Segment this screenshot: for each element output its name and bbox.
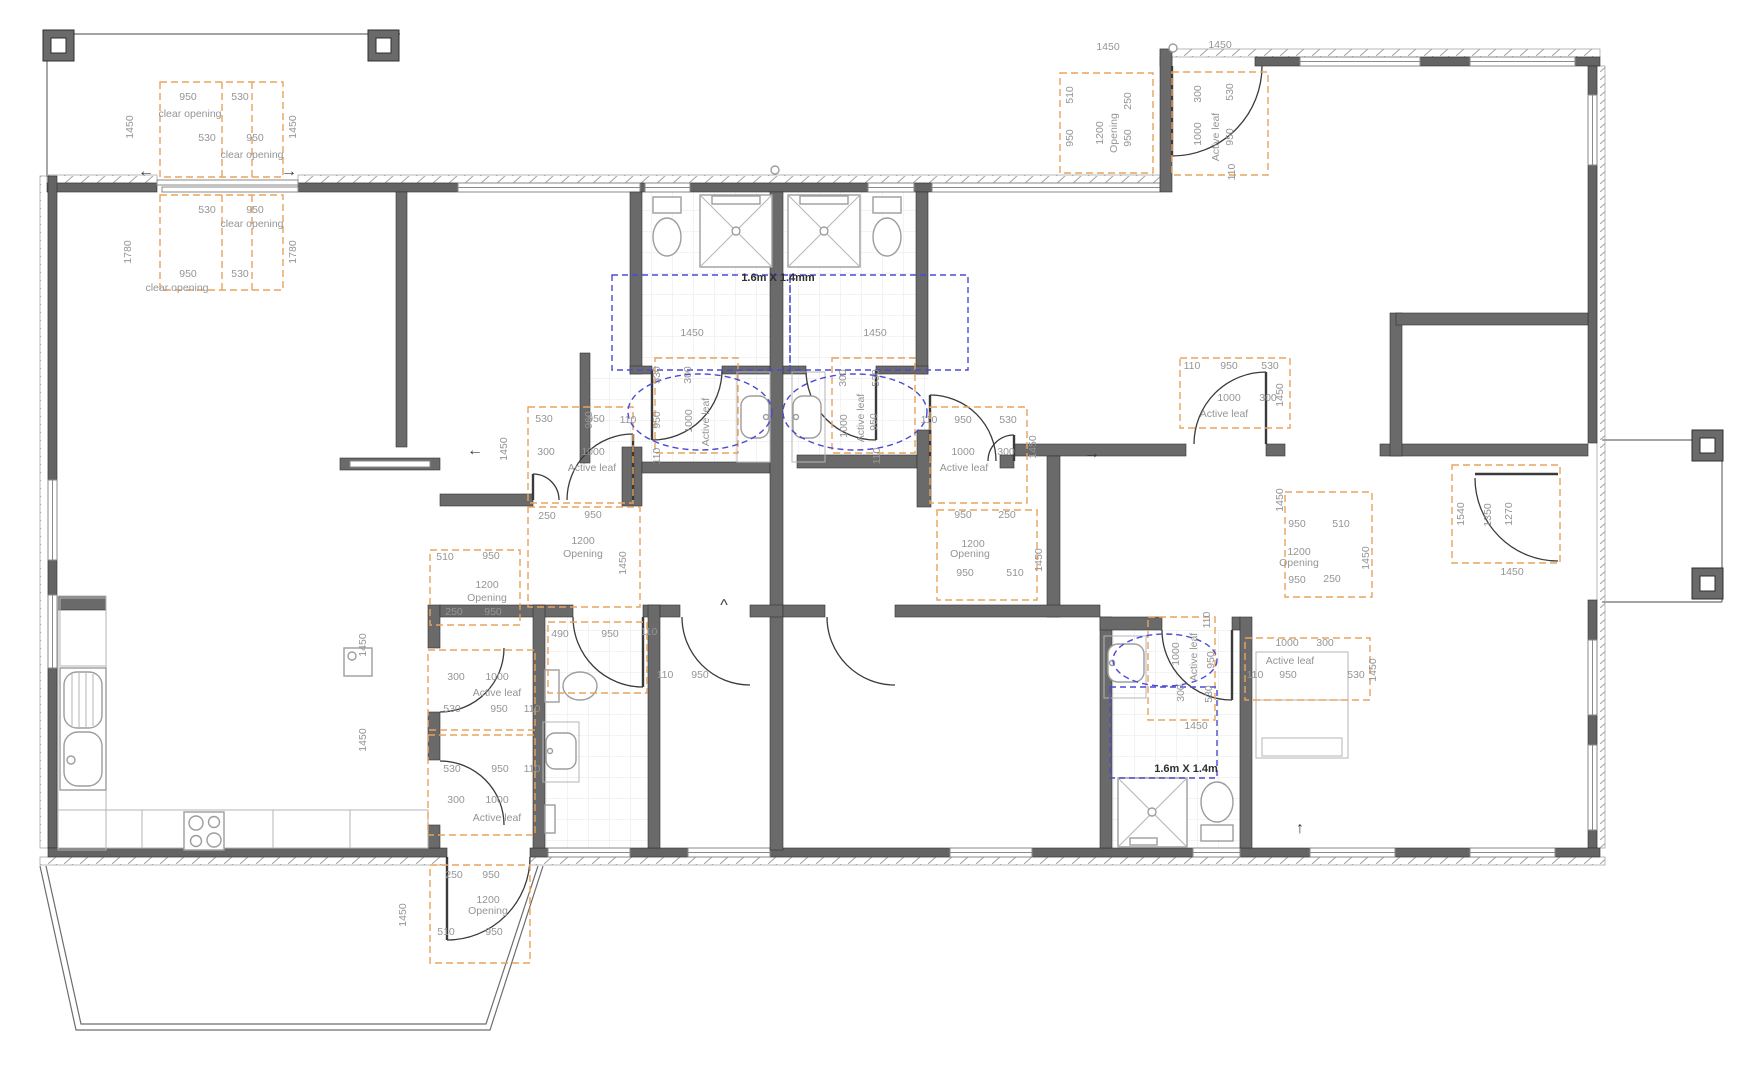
dimension-label: 1450 (357, 728, 369, 752)
dimension-label: 110 (524, 763, 541, 775)
closet-fixture (1256, 652, 1348, 758)
dimension-label: 1000 (951, 446, 975, 458)
sliding-door (157, 180, 298, 192)
dimension-label: Active leaf (473, 687, 522, 699)
dimension-label: 950 (1279, 669, 1297, 681)
dimension-label: Active leaf (1210, 113, 1222, 162)
dimension-label: Opening (467, 592, 507, 604)
direction-arrow: ↑ (1296, 820, 1304, 837)
dimension-label: 950 (1220, 360, 1238, 372)
dimension-label: 110 (620, 414, 637, 426)
dimension-label: 300 (447, 794, 465, 806)
dimension-label: 950 (246, 132, 264, 144)
dimension-label: 530 (870, 369, 882, 387)
dimension-label: 110 (657, 669, 674, 681)
dimension-label: 530 (1347, 669, 1365, 681)
dimension-label: 1000 (581, 446, 605, 458)
dimension-label: 1450 (1360, 546, 1372, 570)
dimension-label: 110 (1184, 360, 1201, 372)
vent-symbol (1169, 44, 1177, 52)
dimension-label: 950 (485, 926, 503, 938)
dimension-label: 950 (246, 204, 264, 216)
dimension-label: Active leaf (855, 394, 867, 443)
dimension-label: 950 (1122, 129, 1134, 147)
floor-plan-canvas: 950530clear opening530950clear opening14… (0, 0, 1762, 1070)
stove-fixture (184, 812, 224, 850)
dimension-label: 1450 (124, 115, 136, 139)
dimension-label: 250 (1323, 573, 1341, 585)
dimension-label: 530 (651, 366, 663, 384)
dimension-label: 250 (538, 510, 556, 522)
dimension-label: 1450 (1367, 658, 1379, 682)
dimension-label: 1450 (1274, 383, 1286, 407)
toilet-fixture (1201, 782, 1233, 841)
dimension-label: 950 (954, 414, 972, 426)
dimension-label: clear opening (220, 218, 283, 230)
dimension-label: 1450 (863, 327, 887, 339)
dimension-label: 300 (997, 446, 1015, 458)
dimension-label: 950 (956, 567, 974, 579)
turning-space-label: 1.6m X 1.4mm (741, 272, 815, 284)
dimension-label: 950 (484, 606, 502, 618)
dimension-label: 110 (1201, 611, 1213, 628)
dimension-label: 530 (1224, 83, 1236, 101)
dimension-label: 950 (482, 869, 500, 881)
dimension-label: 530 (198, 204, 216, 216)
dimension-label: Opening (563, 548, 603, 560)
dimension-label: 250 (998, 509, 1016, 521)
dimension-label: 950 (584, 509, 602, 521)
dimension-label: 530 (443, 703, 461, 715)
dimension-label: 950 (179, 91, 197, 103)
dimension-label: 1450 (680, 327, 704, 339)
dimension-label: 300 (1175, 684, 1187, 702)
dimension-label: 1450 (1500, 566, 1524, 578)
dimension-label: Active leaf (568, 462, 617, 474)
dimension-label: 510 (1064, 86, 1076, 104)
dimension-label: 530 (198, 132, 216, 144)
dimension-label: 510 (1332, 518, 1350, 530)
dimension-label: 530 (231, 91, 249, 103)
turning-space-label: 1.6m X 1.4m (1154, 763, 1218, 775)
dimension-label: 950 (1288, 574, 1306, 586)
dimension-label: 530 (1203, 685, 1215, 703)
dimension-label: 1450 (1096, 41, 1120, 53)
kitchen-counter (58, 596, 428, 850)
dimension-label: 1450 (397, 903, 409, 927)
dimension-label: 110 (1226, 163, 1238, 180)
direction-arrow: ← (138, 163, 154, 180)
shower-fixture (788, 195, 860, 267)
dimension-label: 950 (691, 669, 709, 681)
shower-fixture (700, 195, 772, 267)
dimension-label: 950 (179, 268, 197, 280)
dimension-label: Active leaf (473, 812, 522, 824)
dimension-label: 950 (954, 509, 972, 521)
toilet-fixture (545, 670, 597, 702)
dimension-label: 110 (921, 414, 938, 426)
dimension-label: 1000 (1192, 122, 1204, 146)
dimension-label: 1000 (1170, 642, 1182, 666)
direction-arrow: → (281, 163, 297, 180)
dimension-annotations: 950530clear opening530950clear opening14… (122, 39, 1524, 938)
dimension-label: 1780 (122, 240, 134, 264)
dimension-label: 950 (1205, 651, 1217, 669)
dimension-label: 1450 (357, 633, 369, 657)
dimension-label: 1350 (1482, 503, 1494, 527)
dimension-label: 1200 (1094, 121, 1106, 145)
dimension-label: 1200 (571, 535, 595, 547)
right-porch-outline (1602, 430, 1723, 602)
dimension-label: 1450 (1274, 488, 1286, 512)
dimension-label: Active leaf (1188, 633, 1200, 682)
dimension-label: 1450 (498, 437, 510, 461)
dimension-label: 950 (587, 413, 605, 425)
kitchen-sink-fixture (60, 668, 106, 790)
dimension-label: 1000 (485, 794, 509, 806)
dimension-label: 510 (1006, 567, 1024, 579)
dimension-label: 300 (837, 369, 849, 387)
dimension-label: 300 (537, 446, 555, 458)
dimension-label: clear opening (145, 282, 208, 294)
dimension-label: 110 (524, 703, 541, 715)
dimension-label: 1000 (485, 671, 509, 683)
dimension-label: Active leaf (1200, 408, 1249, 420)
dimension-label: 110 (641, 626, 658, 638)
dimension-label: 950 (491, 763, 509, 775)
dimension-label: 950 (1224, 128, 1236, 146)
dimension-label: clear opening (220, 149, 283, 161)
dimension-label: 510 (437, 926, 455, 938)
dimension-label: 1000 (1275, 637, 1299, 649)
dimension-label: 1450 (1184, 720, 1208, 732)
dimension-label: 950 (482, 550, 500, 562)
dimension-label: 950 (1288, 518, 1306, 530)
dimension-label: 250 (1122, 92, 1134, 110)
dimension-label: 530 (535, 413, 553, 425)
dimension-label: 300 (682, 366, 694, 384)
dimension-label: 530 (1261, 360, 1279, 372)
dimension-label: 250 (445, 606, 463, 618)
toilet-fixture (873, 197, 901, 256)
dimension-label: 1450 (1033, 548, 1045, 572)
toilet-fixture (653, 197, 681, 256)
grab-bar (1130, 838, 1157, 845)
dimension-label: clear opening (158, 108, 221, 120)
dimension-label: 950 (651, 411, 663, 429)
dimension-label: 250 (445, 869, 463, 881)
dimension-label: 1270 (1503, 502, 1515, 526)
dimension-label: 1450 (287, 115, 299, 139)
dimension-label: Opening (468, 905, 508, 917)
dimension-label: 950 (601, 628, 619, 640)
dimension-label: 300 (447, 671, 465, 683)
dimension-label: Active leaf (940, 462, 989, 474)
dimension-label: 950 (868, 413, 880, 431)
dimension-label: 300 (1192, 85, 1204, 103)
dimension-label: Active leaf (700, 398, 712, 447)
dimension-label: 510 (436, 551, 454, 563)
dimension-label: 1450 (617, 551, 629, 575)
dimension-label: 110 (651, 447, 663, 464)
dimension-label: 110 (871, 447, 883, 464)
dimension-label: 1540 (1455, 502, 1467, 526)
dimension-label: 530 (443, 763, 461, 775)
shower-fixture (1118, 778, 1187, 847)
dimension-label: 490 (551, 628, 569, 640)
direction-arrow: ^ (720, 597, 728, 614)
dimension-label: 1000 (683, 409, 695, 433)
dimension-label: 1450 (1027, 435, 1039, 459)
dimension-label: 1000 (1217, 392, 1241, 404)
dimension-label: 1000 (838, 414, 850, 438)
vent-symbol (771, 166, 779, 174)
dimension-label: Opening (1279, 557, 1319, 569)
dimension-label: Opening (1108, 113, 1120, 153)
grab-bar (545, 805, 555, 833)
direction-arrow: → (1084, 445, 1100, 462)
dimension-label: 1200 (475, 579, 499, 591)
dimension-label: Active leaf (1266, 655, 1315, 667)
terrace-outline (40, 866, 543, 1030)
dimension-label: 950 (490, 703, 508, 715)
direction-arrow: ← (467, 442, 483, 459)
dimension-label: 530 (999, 414, 1017, 426)
dimension-label: 1780 (287, 240, 299, 264)
dimension-label: 530 (231, 268, 249, 280)
dimension-label: Opening (950, 548, 990, 560)
dimension-label: 950 (1064, 129, 1076, 147)
dimension-label: 300 (1316, 637, 1334, 649)
dimension-label: 1450 (1208, 39, 1232, 51)
floor-plan-drawing: 950530clear opening530950clear opening14… (0, 0, 1762, 1070)
dimension-label: 110 (1247, 669, 1264, 681)
